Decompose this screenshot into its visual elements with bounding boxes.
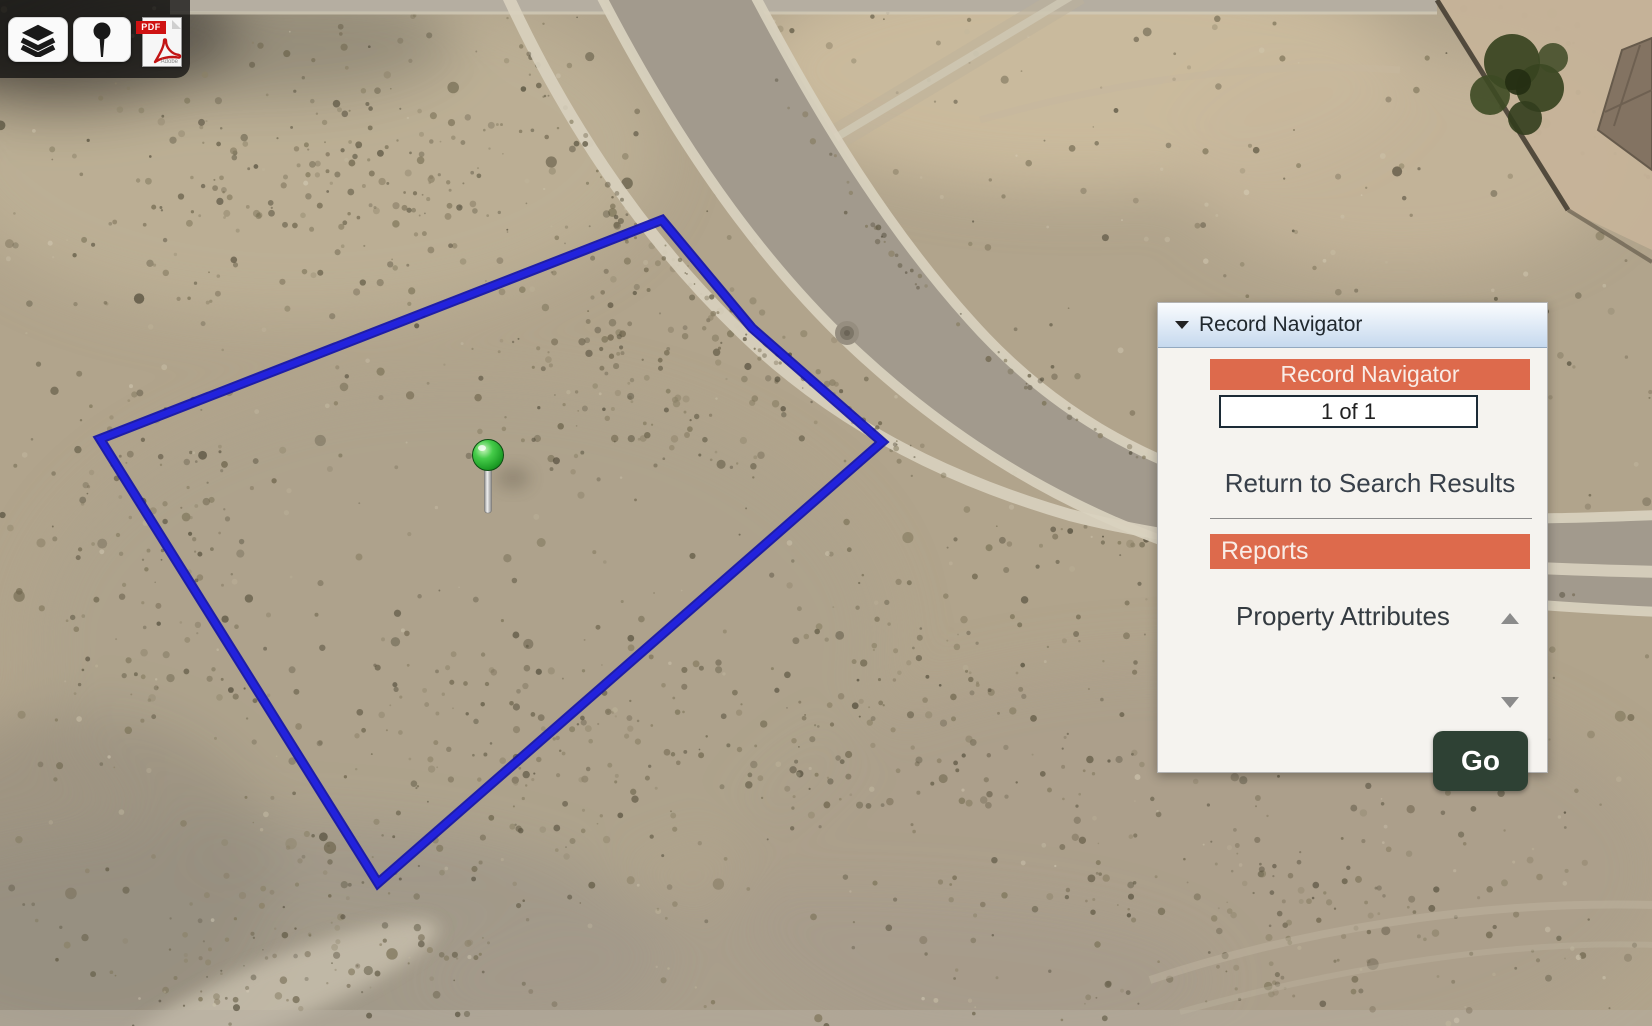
reports-banner: Reports <box>1210 534 1530 569</box>
layers-icon <box>18 23 58 57</box>
record-count-box[interactable]: 1 of 1 <box>1219 395 1478 428</box>
map-pin-icon <box>89 22 115 58</box>
pdf-export-button[interactable]: Adobe PDF <box>136 15 182 67</box>
record-navigator-body: Record Navigator 1 of 1 Return to Search… <box>1158 348 1547 773</box>
pin-button[interactable] <box>73 17 131 62</box>
go-button[interactable]: Go <box>1433 731 1528 791</box>
report-item-property-attributes[interactable]: Property Attributes <box>1213 601 1473 632</box>
pdf-label: PDF <box>136 21 166 34</box>
scroll-down-icon[interactable] <box>1501 697 1519 708</box>
section-divider <box>1210 518 1532 519</box>
record-navigator-panel: Record Navigator Record Navigator 1 of 1… <box>1157 302 1548 773</box>
manhole-cover <box>835 321 859 345</box>
record-navigator-banner: Record Navigator <box>1210 359 1530 390</box>
scroll-up-icon[interactable] <box>1501 613 1519 624</box>
pdf-brand-label: Adobe <box>161 59 178 65</box>
page-fold <box>172 20 181 29</box>
layers-button[interactable] <box>8 17 68 62</box>
record-navigator-header[interactable]: Record Navigator <box>1158 303 1547 348</box>
collapse-caret-icon <box>1175 321 1189 329</box>
record-navigator-header-title: Record Navigator <box>1199 313 1362 337</box>
return-to-search-results-link[interactable]: Return to Search Results <box>1200 468 1540 499</box>
app-stage: Adobe PDF Record Navigator Record Naviga… <box>0 0 1652 1026</box>
